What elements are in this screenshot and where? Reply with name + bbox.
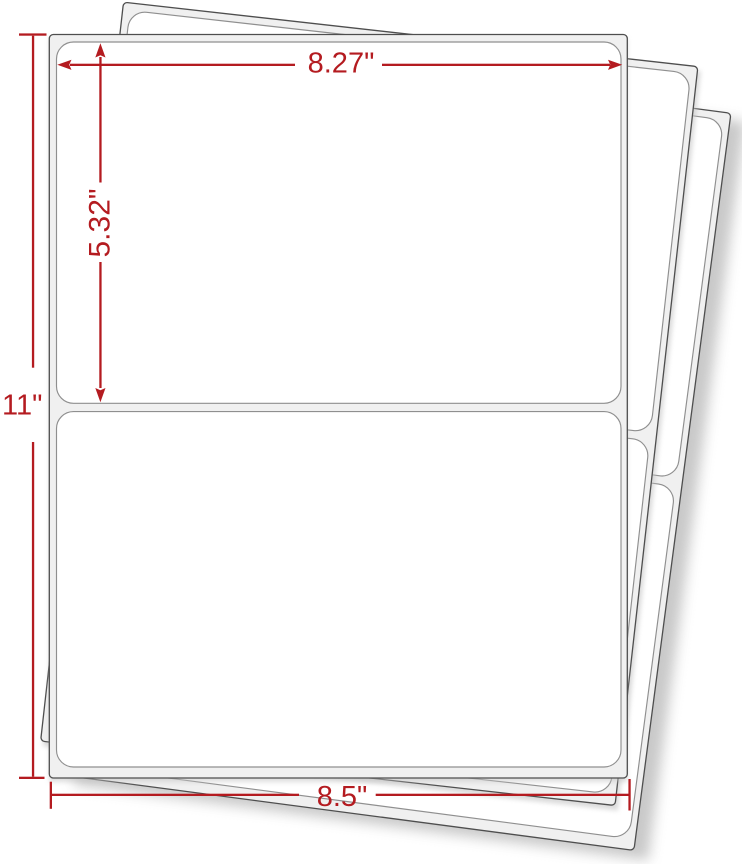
svg-text:8.5": 8.5" [317,781,368,813]
svg-text:11": 11" [2,389,42,421]
svg-text:5.32": 5.32" [84,188,117,257]
svg-text:8.27": 8.27" [308,48,375,80]
